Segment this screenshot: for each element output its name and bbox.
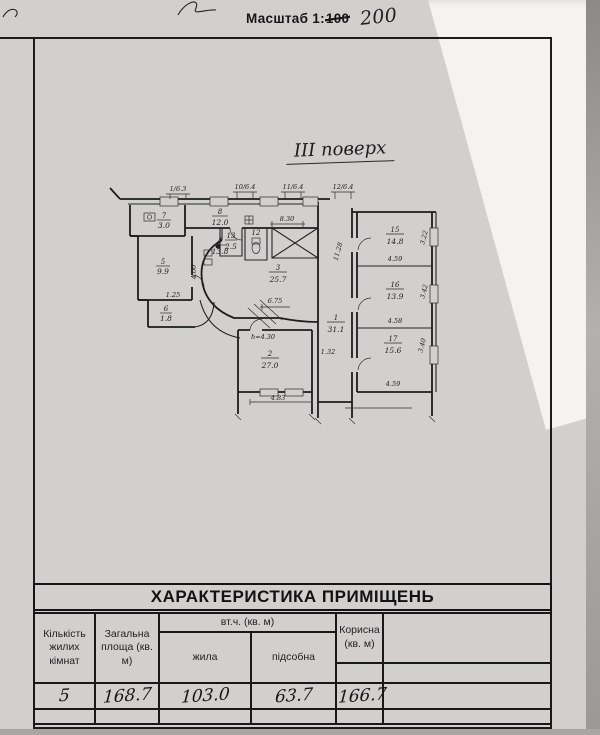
empty-cell bbox=[383, 683, 551, 709]
room-8-area: 12.0 bbox=[212, 218, 229, 227]
dim-4-83: 4.83 bbox=[270, 394, 285, 402]
room-4-area: 13.8 bbox=[212, 247, 229, 256]
scale-crossed-value: 100 bbox=[325, 11, 350, 26]
room-3-area: 25.7 bbox=[269, 275, 287, 284]
header-auxiliary: підсобна bbox=[251, 632, 336, 683]
dim-1-25: 1.25 bbox=[166, 291, 180, 299]
rooms-count-value: 5 bbox=[58, 685, 70, 708]
dim-top-4: 12/6.4 bbox=[333, 183, 354, 191]
characteristics-title: ХАРАКТЕРИСТИКА ПРИМІЩЕНЬ bbox=[151, 587, 434, 607]
dim-1-32: 1.32 bbox=[321, 348, 335, 356]
value-rooms-count: 5 bbox=[34, 683, 95, 709]
empty-cell bbox=[159, 709, 251, 724]
room-label-5: 5 9.9 bbox=[156, 258, 170, 276]
dim-4-00: 4.00 bbox=[190, 265, 198, 280]
empty-cell bbox=[95, 709, 159, 724]
room-16-number: 16 bbox=[391, 281, 400, 289]
room-7-number: 7 bbox=[162, 212, 167, 220]
empty-cell bbox=[34, 709, 95, 724]
room-3-number: 3 bbox=[276, 264, 281, 272]
room-1-area: 31.1 bbox=[328, 325, 345, 334]
scale-prefix: Масштаб 1: bbox=[246, 11, 325, 26]
room-7-area: 3.0 bbox=[158, 221, 170, 230]
frame-line bbox=[0, 37, 33, 39]
scale-label: Масштаб 1:100200 bbox=[246, 6, 398, 28]
room-label-7: 7 3.0 bbox=[157, 212, 171, 230]
room-6-number: 6 bbox=[164, 305, 169, 313]
room-label-17: 17 15.6 bbox=[384, 335, 402, 355]
room-2-area: 27.0 bbox=[261, 361, 279, 370]
room-8-number: 8 bbox=[218, 208, 223, 216]
room-2-number: 2 bbox=[267, 350, 273, 358]
page-bottom-shadow bbox=[0, 729, 600, 735]
dim-room15-width: 4.59 bbox=[387, 255, 402, 263]
dim-top-2: 10/6.4 bbox=[235, 183, 256, 191]
dim-6-75: 6.75 bbox=[268, 297, 282, 305]
total-area-value: 168.7 bbox=[102, 683, 152, 709]
dim-11-28: 11.28 bbox=[332, 241, 345, 261]
dim-room16-width: 4.58 bbox=[387, 317, 402, 325]
header-rooms-count: Кількість жилих кімнат bbox=[34, 613, 95, 683]
scale-handwritten-value: 200 bbox=[359, 4, 398, 30]
room-15-area: 14.8 bbox=[387, 237, 404, 246]
room-label-6: 6 1.8 bbox=[160, 305, 172, 323]
dim-room15-depth: 3.22 bbox=[418, 229, 429, 245]
value-useful: 166.7 bbox=[336, 683, 383, 709]
empty-cell bbox=[251, 709, 336, 724]
room-label-1: 1 31.1 bbox=[327, 314, 345, 334]
room-5-number: 5 bbox=[161, 258, 166, 266]
header-total-area: Загальна площа (кв. м) bbox=[95, 613, 159, 683]
empty-cell bbox=[336, 663, 383, 683]
header-living: жила bbox=[159, 632, 251, 683]
room-16-area: 13.9 bbox=[387, 292, 404, 301]
living-value: 103.0 bbox=[180, 683, 230, 709]
value-total-area: 168.7 bbox=[95, 683, 159, 709]
room-13-number: 13 bbox=[227, 232, 236, 240]
room-label-3: 3 25.7 bbox=[269, 264, 287, 284]
characteristics-table: Кількість жилих кімнат Загальна площа (к… bbox=[33, 612, 552, 725]
room-12-number: 12 bbox=[252, 229, 261, 237]
characteristics-title-box: ХАРАКТЕРИСТИКА ПРИМІЩЕНЬ bbox=[33, 583, 552, 611]
plan-dimension-ticks bbox=[166, 192, 355, 310]
header-extra-column bbox=[383, 613, 551, 663]
room-4-number: 4 bbox=[217, 237, 222, 245]
scanned-page: Масштаб 1:100200 III поверх bbox=[0, 0, 600, 735]
room-label-8: 8 12.0 bbox=[212, 208, 229, 227]
room-label-16: 16 13.9 bbox=[386, 281, 404, 301]
room-15-number: 15 bbox=[391, 226, 400, 234]
room-1-number: 1 bbox=[334, 314, 338, 322]
dim-h-4-30: h=4.30 bbox=[251, 333, 275, 341]
handwriting-flourish bbox=[0, 0, 260, 24]
dim-8-30: 8.30 bbox=[280, 215, 294, 223]
floor-plan: 7 3.0 5 9.9 6 1.8 8 12.0 13 2.5 12 4 bbox=[100, 180, 450, 430]
table-empty-row bbox=[34, 709, 551, 724]
empty-cell bbox=[383, 709, 551, 724]
empty-cell bbox=[383, 663, 551, 683]
room-5-area: 9.9 bbox=[157, 267, 169, 276]
dim-room16-depth: 3.42 bbox=[418, 283, 429, 299]
value-living: 103.0 bbox=[159, 683, 251, 709]
room-label-12: 12 bbox=[252, 229, 261, 237]
table-data-row: 5 168.7 103.0 63.7 166.7 bbox=[34, 683, 551, 709]
value-auxiliary: 63.7 bbox=[251, 683, 336, 709]
room-17-number: 17 bbox=[389, 335, 398, 343]
auxiliary-value: 63.7 bbox=[274, 684, 313, 709]
dim-room17-depth: 3.40 bbox=[416, 337, 427, 353]
floor-title: III поверх bbox=[286, 137, 395, 165]
dim-top-3: 11/6.4 bbox=[283, 183, 304, 191]
room-6-area: 1.8 bbox=[160, 314, 172, 323]
room-label-15: 15 14.8 bbox=[386, 226, 404, 246]
room-label-2: 2 27.0 bbox=[261, 350, 279, 370]
dim-room17-width: 4.59 bbox=[385, 380, 400, 388]
useful-value: 166.7 bbox=[337, 683, 387, 709]
header-including: вт.ч. (кв. м) bbox=[159, 613, 336, 632]
room-17-area: 15.6 bbox=[385, 346, 402, 355]
page-edge-shadow bbox=[586, 0, 600, 735]
empty-cell bbox=[336, 709, 383, 724]
header-useful: Корисна (кв. м) bbox=[336, 613, 383, 663]
dim-top-1: 1/6.3 bbox=[170, 185, 187, 193]
